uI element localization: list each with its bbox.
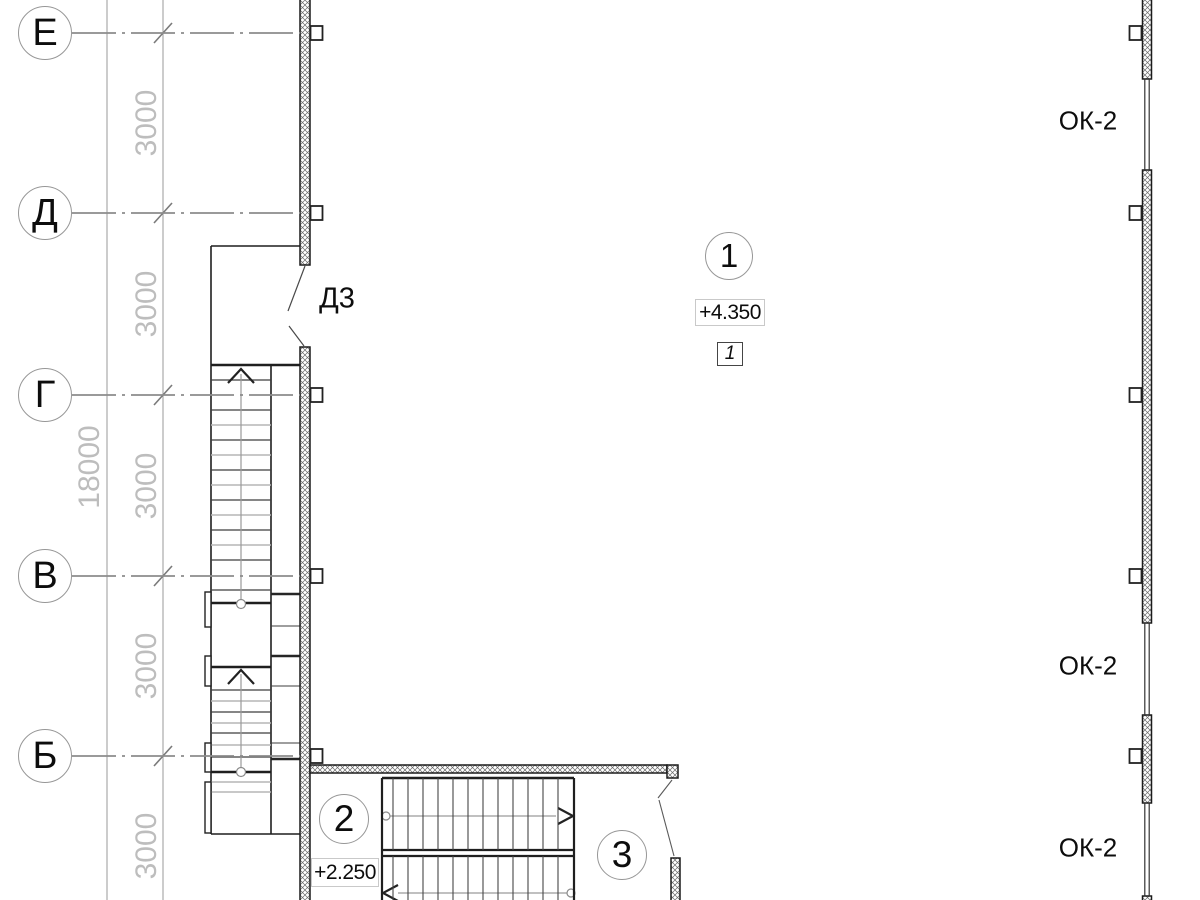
wall-right-3 bbox=[1143, 715, 1152, 803]
wall-left-upper bbox=[300, 0, 310, 265]
grid-axis-b: Б bbox=[18, 729, 72, 783]
grid-axis-v: В bbox=[18, 549, 72, 603]
door-lower-right-leaves bbox=[658, 780, 674, 856]
stair-direction-circles bbox=[237, 600, 576, 898]
floor-plan-stage: Е Д Г В Б 3000 3000 3000 3000 3000 18000… bbox=[0, 0, 1200, 900]
grid-axis-e: Е bbox=[18, 6, 72, 60]
grid-axis-d: Д bbox=[18, 186, 72, 240]
detail-reference-box: 1 bbox=[717, 342, 743, 366]
stair-flight-edges bbox=[211, 365, 300, 772]
wall-bottom-horizontal bbox=[310, 765, 667, 773]
stair-side-strip bbox=[271, 594, 300, 759]
door-d3-leaves bbox=[288, 266, 305, 346]
window-3 bbox=[1145, 803, 1149, 896]
grid-axis-lines bbox=[72, 33, 300, 756]
stairwell-outline bbox=[211, 246, 300, 834]
wall-left-lower bbox=[300, 347, 310, 900]
room-bubble-1: 1 bbox=[705, 232, 753, 280]
bay-dimension-2: 3000 bbox=[130, 271, 164, 338]
bay-dimension-5: 3000 bbox=[130, 813, 164, 880]
door-tag-d3: Д3 bbox=[319, 283, 355, 316]
walls bbox=[300, 0, 1152, 900]
bay-dimension-4: 3000 bbox=[130, 633, 164, 700]
room-bubble-3: 3 bbox=[597, 830, 647, 880]
elevation-mark-1: +4.350 bbox=[695, 299, 765, 326]
window-tag-3: ОК-2 bbox=[1059, 833, 1118, 864]
window-tag-1: ОК-2 bbox=[1059, 106, 1118, 137]
overall-dimension: 18000 bbox=[73, 425, 107, 508]
bay-dimension-1: 3000 bbox=[130, 90, 164, 157]
window-tag-2: ОК-2 bbox=[1059, 651, 1118, 682]
stair-direction-lines bbox=[241, 374, 567, 893]
stair-direction-arrows bbox=[228, 369, 573, 900]
wall-right-2 bbox=[1143, 170, 1152, 623]
wall-bottom-end-cap bbox=[667, 765, 678, 778]
stair-wall-stubs bbox=[205, 592, 211, 833]
wall-right-4 bbox=[1143, 896, 1152, 900]
room-bubble-2: 2 bbox=[319, 794, 369, 844]
wall-tick-squares bbox=[311, 26, 1142, 763]
wall-right-1 bbox=[1143, 0, 1152, 79]
wall-door-stub bbox=[671, 858, 680, 900]
lower-stairs bbox=[382, 778, 574, 900]
window-2 bbox=[1145, 623, 1149, 715]
window-1 bbox=[1145, 79, 1149, 170]
floor-plan-canvas bbox=[0, 0, 1200, 900]
elevation-mark-2: +2.250 bbox=[311, 858, 379, 887]
grid-axis-g: Г bbox=[18, 368, 72, 422]
bay-dimension-3: 3000 bbox=[130, 453, 164, 520]
